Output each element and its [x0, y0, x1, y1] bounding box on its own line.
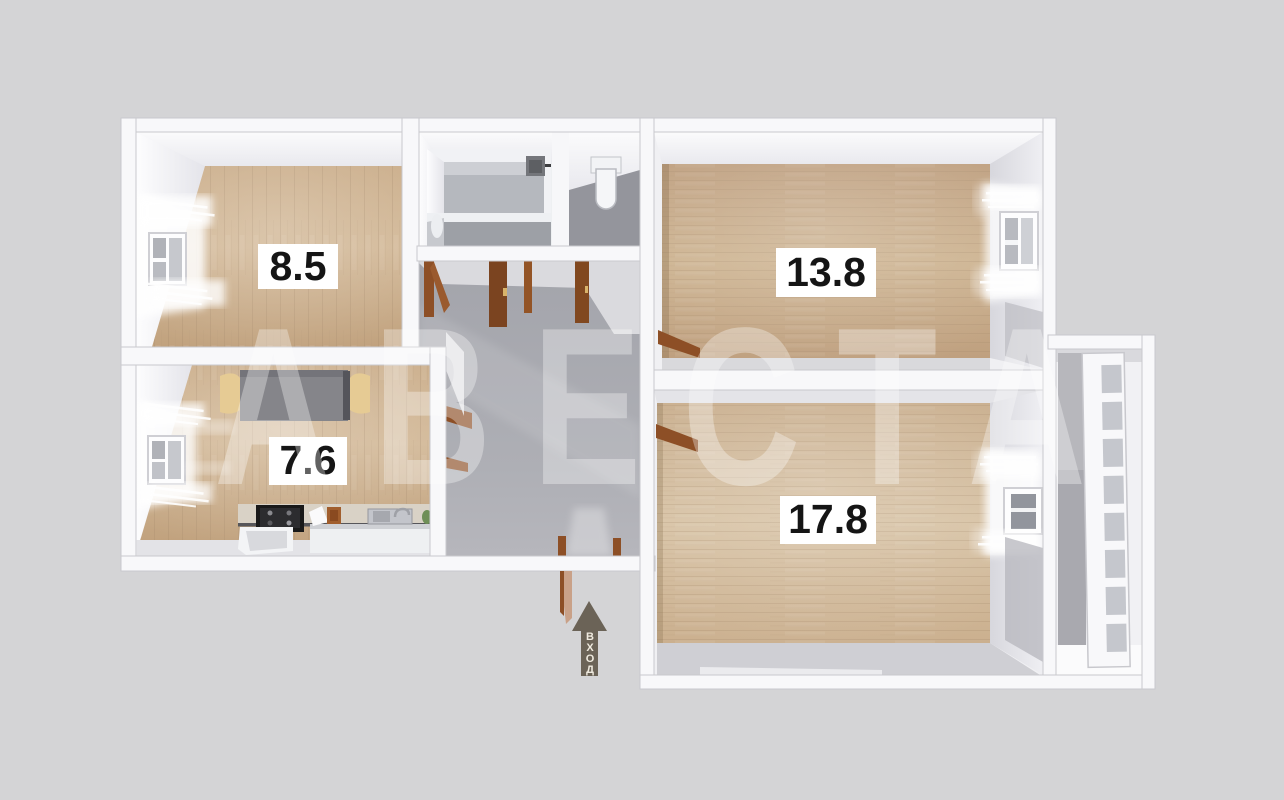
svg-text:Д: Д	[586, 664, 594, 676]
